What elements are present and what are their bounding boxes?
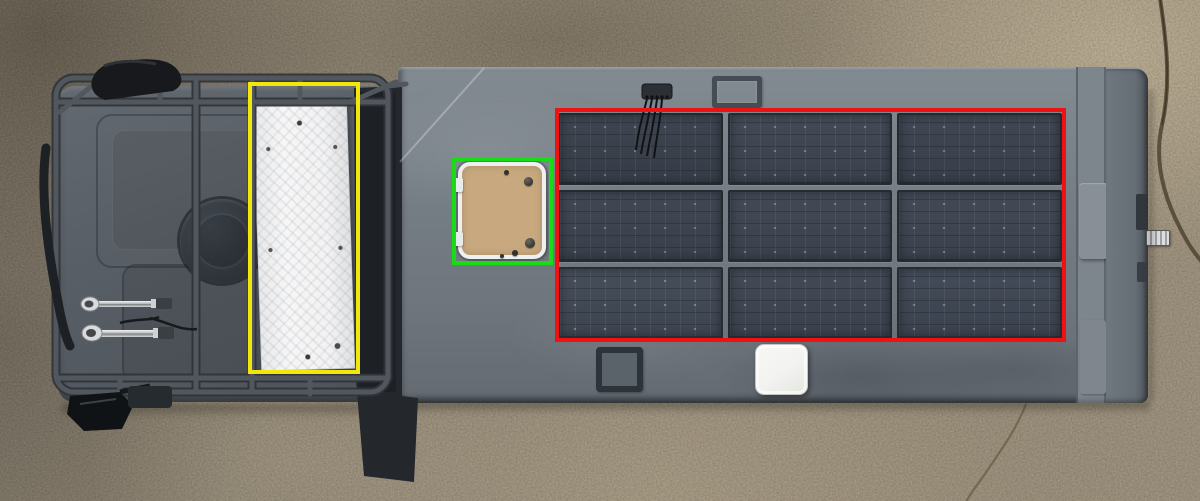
cab-ground-shadow xyxy=(62,404,388,418)
camper-ground-shadow xyxy=(404,401,1150,414)
annotation-box-yellow xyxy=(248,82,360,374)
roof-hatch-frame xyxy=(596,347,643,392)
rear-fitting xyxy=(1136,194,1148,230)
aerial-photo xyxy=(0,0,1200,501)
roof-cylinder-rim xyxy=(194,213,250,269)
white-roof-vent xyxy=(755,344,808,395)
roof-mount-frame xyxy=(712,76,762,108)
rear-fitting xyxy=(1137,262,1147,282)
rear-bracket xyxy=(1079,183,1108,259)
camper-rear-wall xyxy=(1106,69,1148,403)
rear-bracket xyxy=(1080,320,1106,394)
rear-ground-shadow xyxy=(1148,90,1157,400)
annotation-box-red xyxy=(555,108,1066,342)
annotation-box-green xyxy=(452,157,553,265)
